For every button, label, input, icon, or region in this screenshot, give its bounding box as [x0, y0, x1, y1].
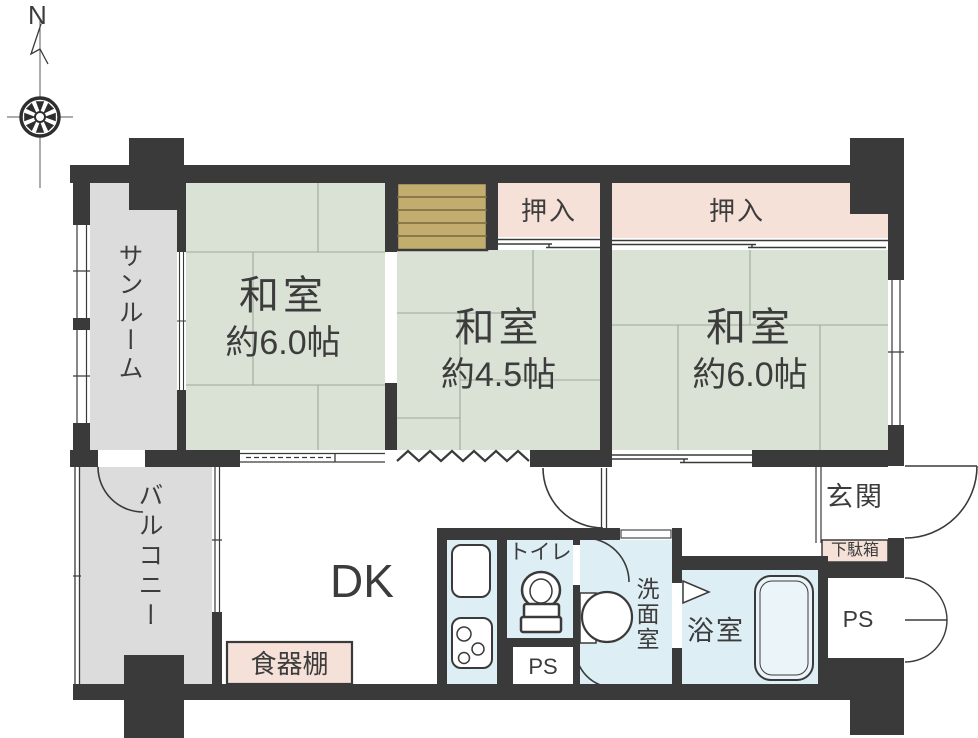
room-size-washitsu-left: 約6.0帖 [180, 326, 386, 360]
entrance-door-arc [905, 466, 977, 538]
compass-icon [7, 20, 73, 188]
room-label-toilet: トイレ [505, 542, 575, 563]
room-label-washitsu-right: 和室 [612, 308, 888, 348]
wood-alcove [397, 183, 487, 250]
bathtub-icon [755, 576, 813, 680]
room-label-closet-right: 押入 [612, 198, 862, 224]
stove-icon [452, 618, 492, 668]
room-size-washitsu-right: 約6.0帖 [612, 358, 888, 392]
toilet-icon [521, 572, 561, 632]
room-label-closet-center: 押入 [498, 198, 600, 224]
washitsu-center-area [397, 250, 600, 460]
room-label-washroom: 洗面室 [634, 577, 657, 652]
kitchen-sink-icon [452, 545, 490, 597]
label-ps-entrance: PS [828, 608, 888, 631]
floor-plan: N サンルーム 和室 約6.0帖 和室 約4.5帖 和室 約6.0帖 押入 押入… [0, 0, 978, 738]
ps-double-door-arc [905, 578, 947, 662]
room-size-washitsu-center: 約4.5帖 [397, 358, 600, 392]
dk-door-arc [543, 468, 603, 528]
label-shoe-cabinet: 下駄箱 [822, 543, 888, 559]
room-label-bathroom: 浴室 [680, 618, 752, 645]
label-ps-kitchen: PS [513, 656, 573, 678]
room-label-sunroom: サンルーム [116, 243, 141, 383]
washbasin-icon [580, 592, 632, 643]
room-label-washitsu-left: 和室 [180, 276, 386, 316]
compass-north-label: N [28, 2, 47, 28]
entrance-step [816, 467, 821, 543]
room-label-dk: DK [320, 558, 404, 604]
room-label-balcony: バルコニー [136, 482, 161, 632]
label-cupboard: 食器棚 [227, 651, 352, 677]
room-label-entrance: 玄関 [822, 484, 888, 511]
room-label-washitsu-center: 和室 [397, 308, 600, 348]
dk-door-leaf [602, 468, 607, 528]
